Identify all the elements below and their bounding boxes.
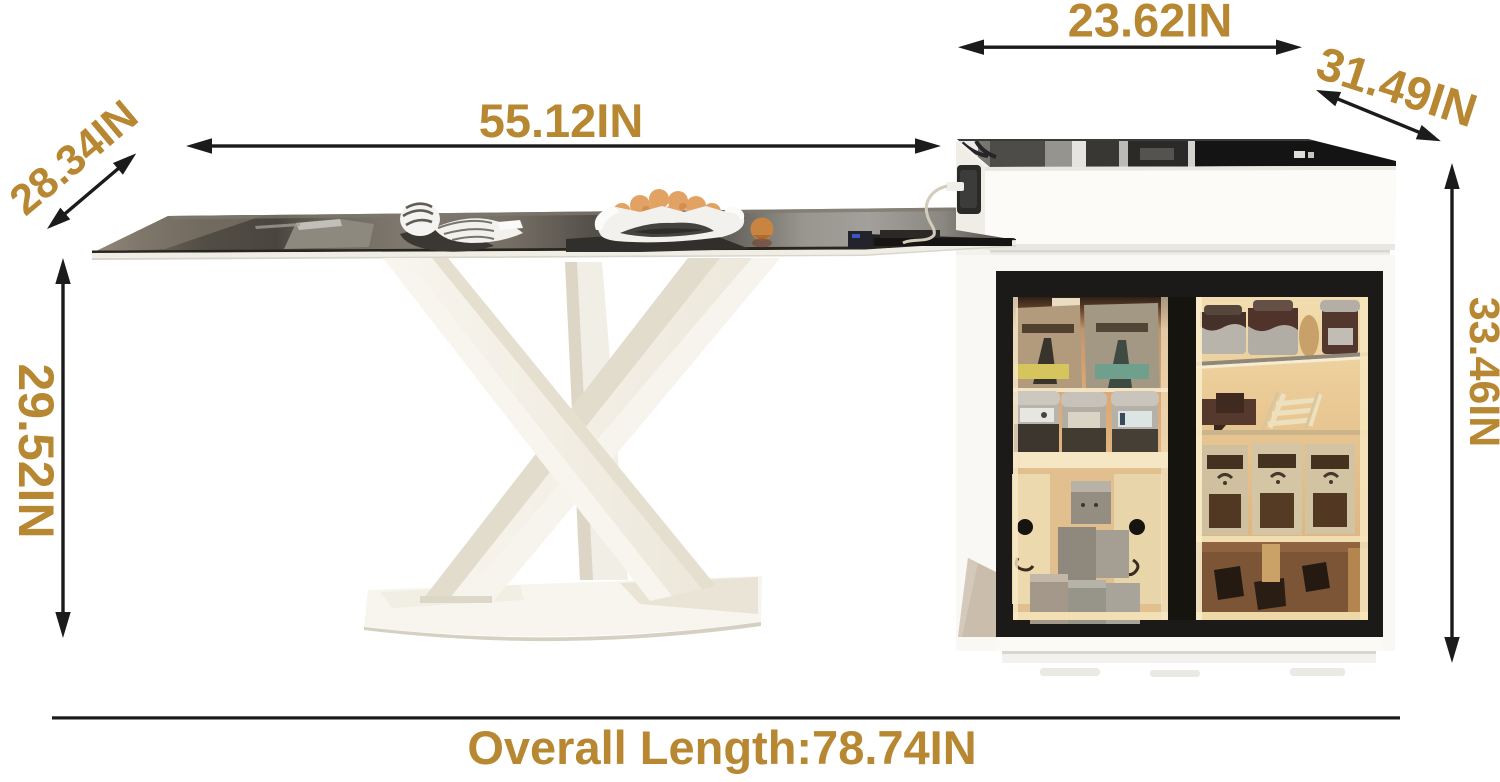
svg-text:29.52IN: 29.52IN xyxy=(8,363,64,538)
svg-text:Overall Length:78.74IN: Overall Length:78.74IN xyxy=(467,721,976,774)
svg-text:55.12IN: 55.12IN xyxy=(479,94,644,147)
svg-text:23.62IN: 23.62IN xyxy=(1068,0,1233,47)
svg-text:33.46IN: 33.46IN xyxy=(1460,297,1500,448)
